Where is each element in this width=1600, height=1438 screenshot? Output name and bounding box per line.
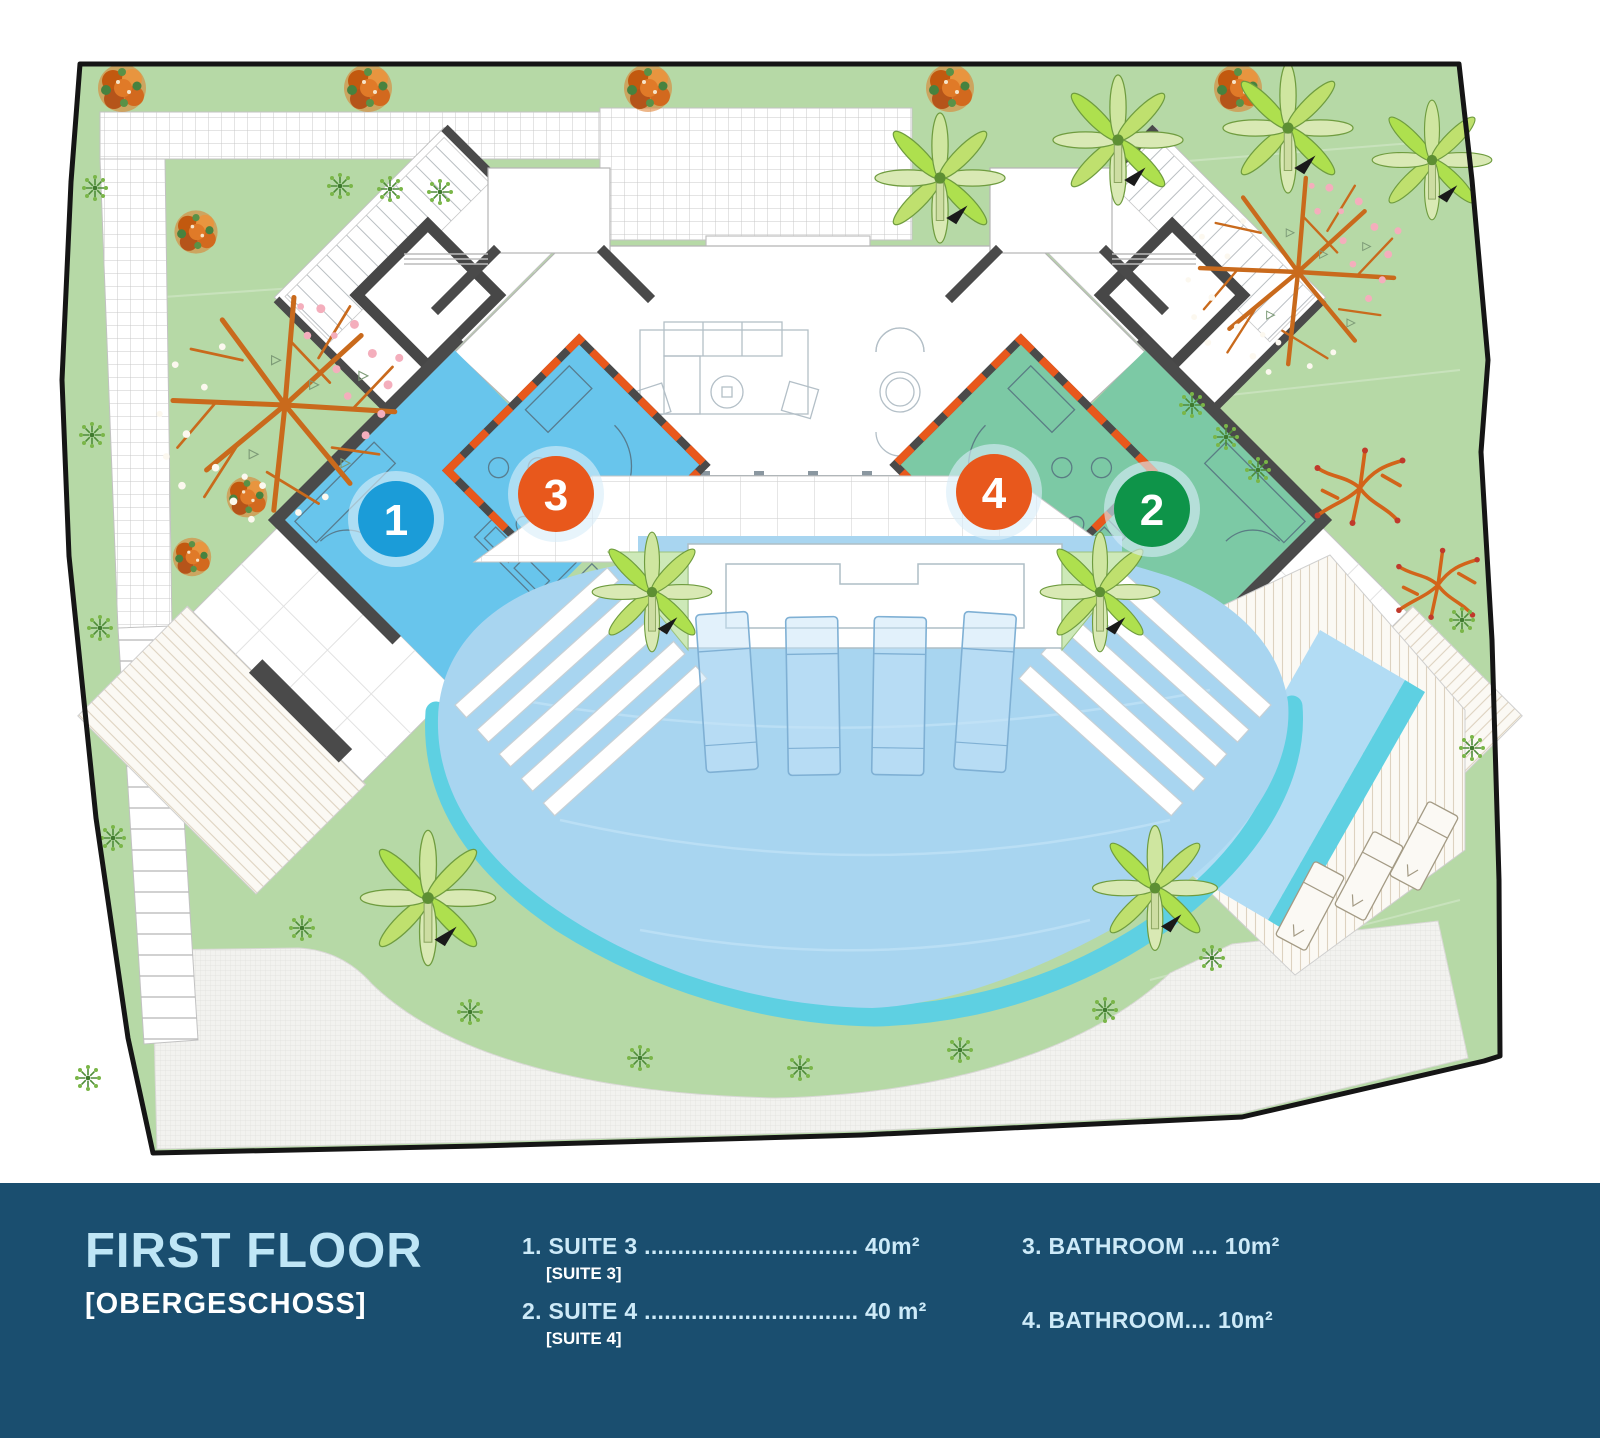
marker-4: 4 xyxy=(946,444,1042,540)
legend-item-bathroom-3-text: 3. BATHROOM .... 10m² xyxy=(1022,1233,1462,1260)
legend-item-bathroom-3: 3. BATHROOM .... 10m² xyxy=(1022,1233,1462,1260)
marker-3-label: 3 xyxy=(544,471,568,520)
legend-item-bathroom-4: 4. BATHROOM.... 10m² xyxy=(1022,1307,1462,1334)
legend-item-suite-4-text: 2. SUITE 4 .............................… xyxy=(522,1298,962,1325)
plan-title-block: FIRST FLOOR [OBERGESCHOSS] xyxy=(85,1227,423,1321)
legend-item-suite-3-text: 1. SUITE 3 .............................… xyxy=(522,1233,962,1260)
legend-column-left: 1. SUITE 3 .............................… xyxy=(522,1233,962,1363)
legend-item-suite-4: 2. SUITE 4 .............................… xyxy=(522,1298,962,1349)
legend-column-right: 3. BATHROOM .... 10m² 4. BATHROOM.... 10… xyxy=(1022,1233,1462,1381)
page-subtitle: [OBERGESCHOSS] xyxy=(85,1288,423,1321)
marker-1-label: 1 xyxy=(384,496,408,545)
floor-plan: 1 3 4 2 xyxy=(0,0,1600,1183)
legend-item-suite-4-sub: [SUITE 4] xyxy=(546,1329,962,1349)
legend-item-bathroom-4-text: 4. BATHROOM.... 10m² xyxy=(1022,1307,1462,1334)
page-title: FIRST FLOOR xyxy=(85,1227,423,1276)
legend-item-suite-3: 1. SUITE 3 .............................… xyxy=(522,1233,962,1284)
marker-4-label: 4 xyxy=(982,469,1007,518)
marker-1: 1 xyxy=(348,471,444,567)
legend-item-suite-3-sub: [SUITE 3] xyxy=(546,1264,962,1284)
marker-3: 3 xyxy=(508,446,604,542)
marker-2: 2 xyxy=(1104,461,1200,557)
legend-bar: FIRST FLOOR [OBERGESCHOSS] 1. SUITE 3 ..… xyxy=(0,1183,1600,1438)
marker-2-label: 2 xyxy=(1140,486,1164,535)
